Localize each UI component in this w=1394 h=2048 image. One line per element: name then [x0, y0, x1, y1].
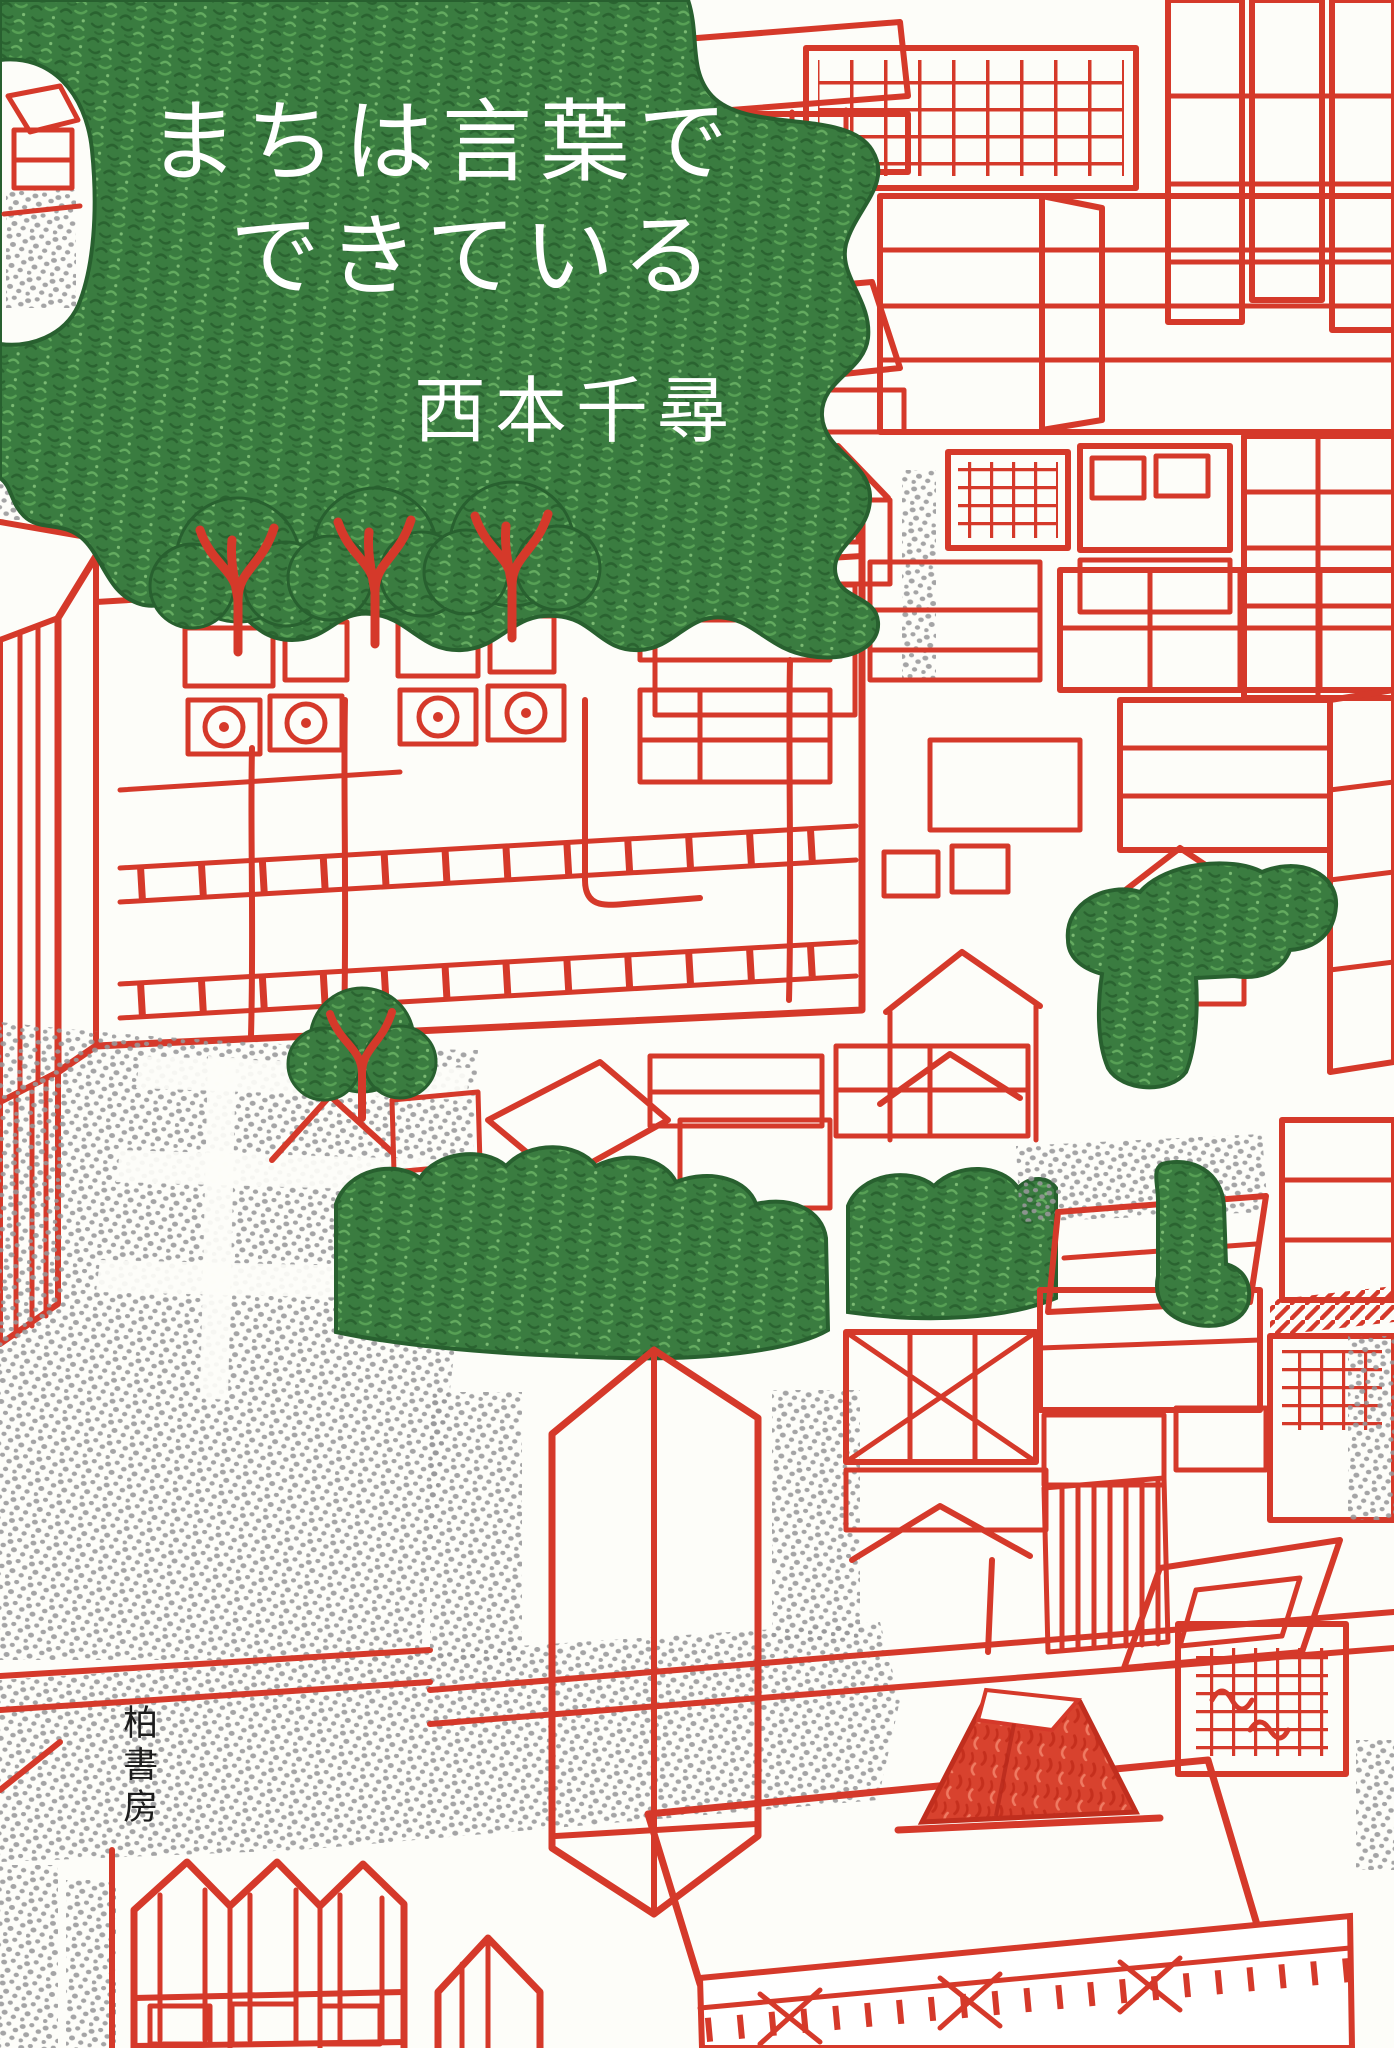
- book-cover: まちは言葉で できている 西本千尋 柏書房: [0, 0, 1394, 2048]
- book-title-line1: まちは言葉で: [148, 90, 736, 195]
- publisher-name: 柏書房: [116, 1704, 157, 1830]
- book-title-line2: できている: [148, 200, 736, 314]
- author-name: 西本千尋: [414, 352, 738, 457]
- book-title: まちは言葉で できている: [148, 86, 736, 314]
